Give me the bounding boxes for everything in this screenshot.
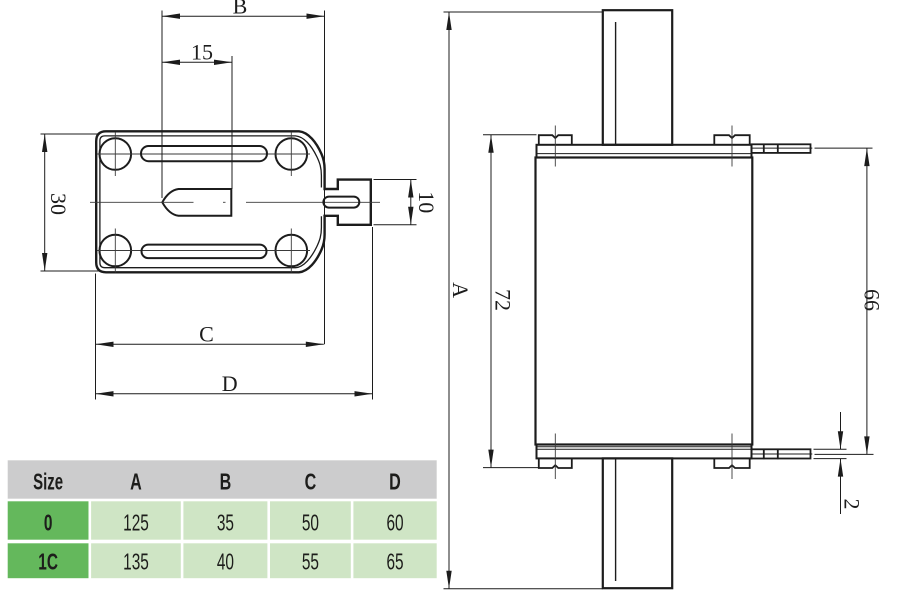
svg-text:30: 30 bbox=[46, 193, 71, 215]
svg-text:40: 40 bbox=[217, 550, 234, 576]
svg-text:50: 50 bbox=[302, 511, 319, 537]
svg-text:55: 55 bbox=[302, 550, 319, 576]
svg-text:Size: Size bbox=[33, 469, 63, 495]
svg-text:D: D bbox=[389, 470, 401, 495]
svg-text:15: 15 bbox=[191, 40, 213, 65]
svg-text:72: 72 bbox=[491, 289, 516, 311]
svg-text:D: D bbox=[222, 371, 238, 396]
svg-text:125: 125 bbox=[123, 511, 149, 537]
svg-text:66: 66 bbox=[860, 289, 885, 311]
svg-text:60: 60 bbox=[386, 511, 403, 537]
svg-text:C: C bbox=[305, 470, 317, 495]
svg-text:B: B bbox=[233, 0, 248, 19]
svg-text:C: C bbox=[199, 322, 214, 347]
svg-text:35: 35 bbox=[217, 511, 234, 537]
svg-text:10: 10 bbox=[414, 191, 439, 213]
svg-text:0: 0 bbox=[44, 511, 53, 537]
svg-text:1C: 1C bbox=[38, 550, 58, 576]
svg-text:135: 135 bbox=[123, 550, 149, 576]
svg-text:A: A bbox=[448, 282, 473, 298]
svg-text:B: B bbox=[220, 470, 232, 495]
svg-text:2: 2 bbox=[840, 499, 865, 510]
svg-text:A: A bbox=[130, 470, 142, 495]
svg-text:65: 65 bbox=[386, 550, 403, 576]
